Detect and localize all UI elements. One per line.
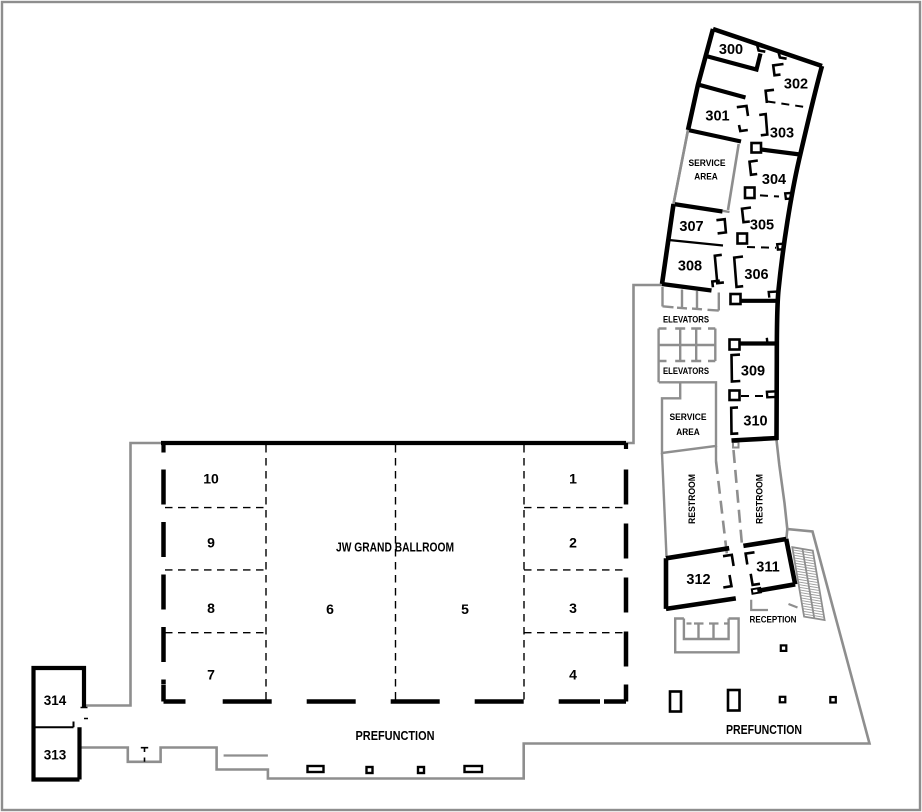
svg-text:7: 7 — [207, 667, 215, 683]
svg-text:AREA: AREA — [694, 172, 718, 183]
svg-text:302: 302 — [784, 77, 808, 93]
svg-text:306: 306 — [744, 267, 768, 283]
svg-text:SERVICE: SERVICE — [689, 158, 726, 169]
svg-text:SERVICE: SERVICE — [670, 412, 707, 423]
svg-text:6: 6 — [326, 601, 334, 617]
svg-text:JW GRAND BALLROOM: JW GRAND BALLROOM — [336, 541, 454, 555]
svg-text:308: 308 — [678, 259, 702, 275]
svg-text:309: 309 — [741, 364, 765, 380]
svg-text:307: 307 — [679, 219, 703, 235]
svg-text:10: 10 — [203, 471, 219, 487]
svg-text:300: 300 — [719, 42, 743, 58]
svg-text:PREFUNCTION: PREFUNCTION — [356, 729, 435, 743]
svg-text:5: 5 — [461, 601, 469, 617]
svg-text:9: 9 — [207, 535, 215, 551]
svg-text:8: 8 — [207, 600, 215, 616]
svg-text:303: 303 — [770, 126, 794, 142]
svg-text:4: 4 — [569, 667, 577, 683]
svg-text:312: 312 — [686, 572, 710, 588]
svg-text:PREFUNCTION: PREFUNCTION — [726, 723, 802, 737]
svg-text:310: 310 — [743, 414, 767, 430]
svg-text:305: 305 — [750, 218, 774, 234]
svg-text:3: 3 — [569, 600, 577, 616]
svg-text:RECEPTION: RECEPTION — [750, 615, 797, 626]
svg-text:RESTROOM: RESTROOM — [687, 474, 698, 524]
svg-text:313: 313 — [44, 748, 67, 763]
svg-text:2: 2 — [569, 535, 577, 551]
svg-text:314: 314 — [44, 693, 67, 708]
svg-text:301: 301 — [705, 109, 729, 125]
svg-text:ELEVATORS: ELEVATORS — [663, 315, 709, 326]
svg-text:AREA: AREA — [676, 427, 700, 438]
svg-text:RESTROOM: RESTROOM — [755, 474, 766, 524]
svg-text:ELEVATORS: ELEVATORS — [663, 366, 709, 377]
svg-text:304: 304 — [762, 172, 786, 188]
svg-text:1: 1 — [569, 471, 577, 487]
svg-text:311: 311 — [756, 560, 779, 576]
